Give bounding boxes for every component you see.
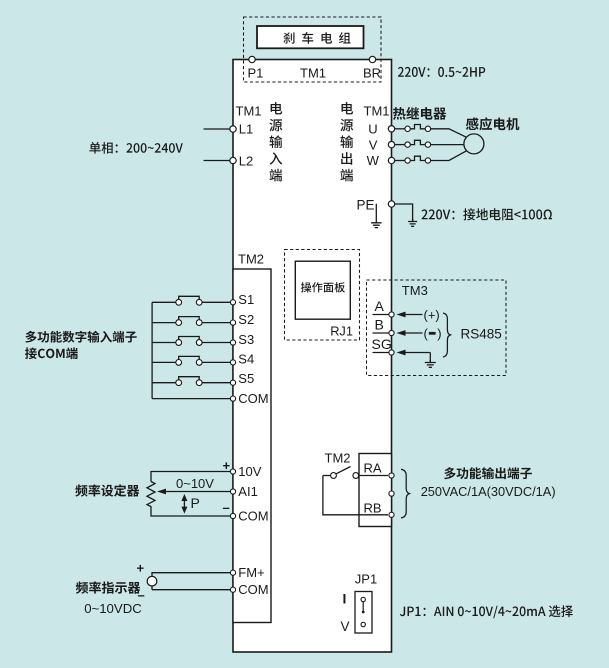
svg-text:TM1: TM1	[236, 104, 262, 119]
svg-text:RA: RA	[364, 461, 382, 476]
svg-text:TM3: TM3	[402, 283, 428, 298]
svg-text:COM: COM	[238, 509, 268, 524]
svg-text:JP1: JP1	[355, 572, 377, 587]
svg-text:RJ1: RJ1	[330, 324, 353, 339]
svg-text:COM: COM	[238, 582, 268, 597]
svg-text:V: V	[369, 137, 378, 152]
svg-text:BR: BR	[363, 66, 381, 81]
svg-text:PE: PE	[357, 198, 375, 213]
svg-text:I: I	[343, 591, 347, 607]
svg-text:(+): (+)	[424, 307, 440, 322]
svg-text:TM2: TM2	[238, 252, 264, 267]
svg-text:S4: S4	[238, 352, 254, 367]
svg-text:COM: COM	[238, 391, 268, 406]
svg-text:TM2: TM2	[325, 451, 351, 466]
svg-text:TM1: TM1	[364, 104, 390, 119]
svg-text:0~10VDC: 0~10VDC	[84, 601, 142, 616]
svg-text:+: +	[223, 458, 231, 473]
svg-text:S2: S2	[238, 312, 254, 327]
svg-text:U: U	[368, 122, 377, 137]
svg-text:FM+: FM+	[238, 565, 264, 580]
svg-text:V: V	[341, 619, 350, 634]
svg-text:250VAC/1A(30VDC/1A): 250VAC/1A(30VDC/1A)	[421, 484, 556, 499]
svg-text:B: B	[375, 316, 384, 332]
svg-text:10V: 10V	[238, 464, 261, 479]
svg-text:S3: S3	[238, 332, 254, 347]
svg-text:SG: SG	[372, 336, 392, 352]
svg-text:RB: RB	[364, 501, 382, 516]
svg-text:S5: S5	[238, 371, 254, 386]
svg-text:L2: L2	[239, 153, 253, 168]
svg-text:P: P	[191, 495, 200, 511]
svg-text:0~10V: 0~10V	[176, 476, 214, 491]
svg-text:+: +	[137, 561, 145, 576]
svg-text:): )	[437, 326, 441, 341]
svg-text:–: –	[223, 500, 230, 515]
svg-text:A: A	[375, 298, 385, 314]
svg-text:P1: P1	[248, 66, 264, 81]
svg-text:L1: L1	[239, 122, 253, 137]
svg-text:AI1: AI1	[238, 484, 258, 499]
svg-text:W: W	[367, 153, 380, 168]
svg-text:(: (	[424, 326, 429, 341]
svg-text:RS485: RS485	[461, 327, 502, 342]
svg-text:TM1: TM1	[300, 66, 326, 81]
svg-text:S1: S1	[238, 292, 254, 307]
